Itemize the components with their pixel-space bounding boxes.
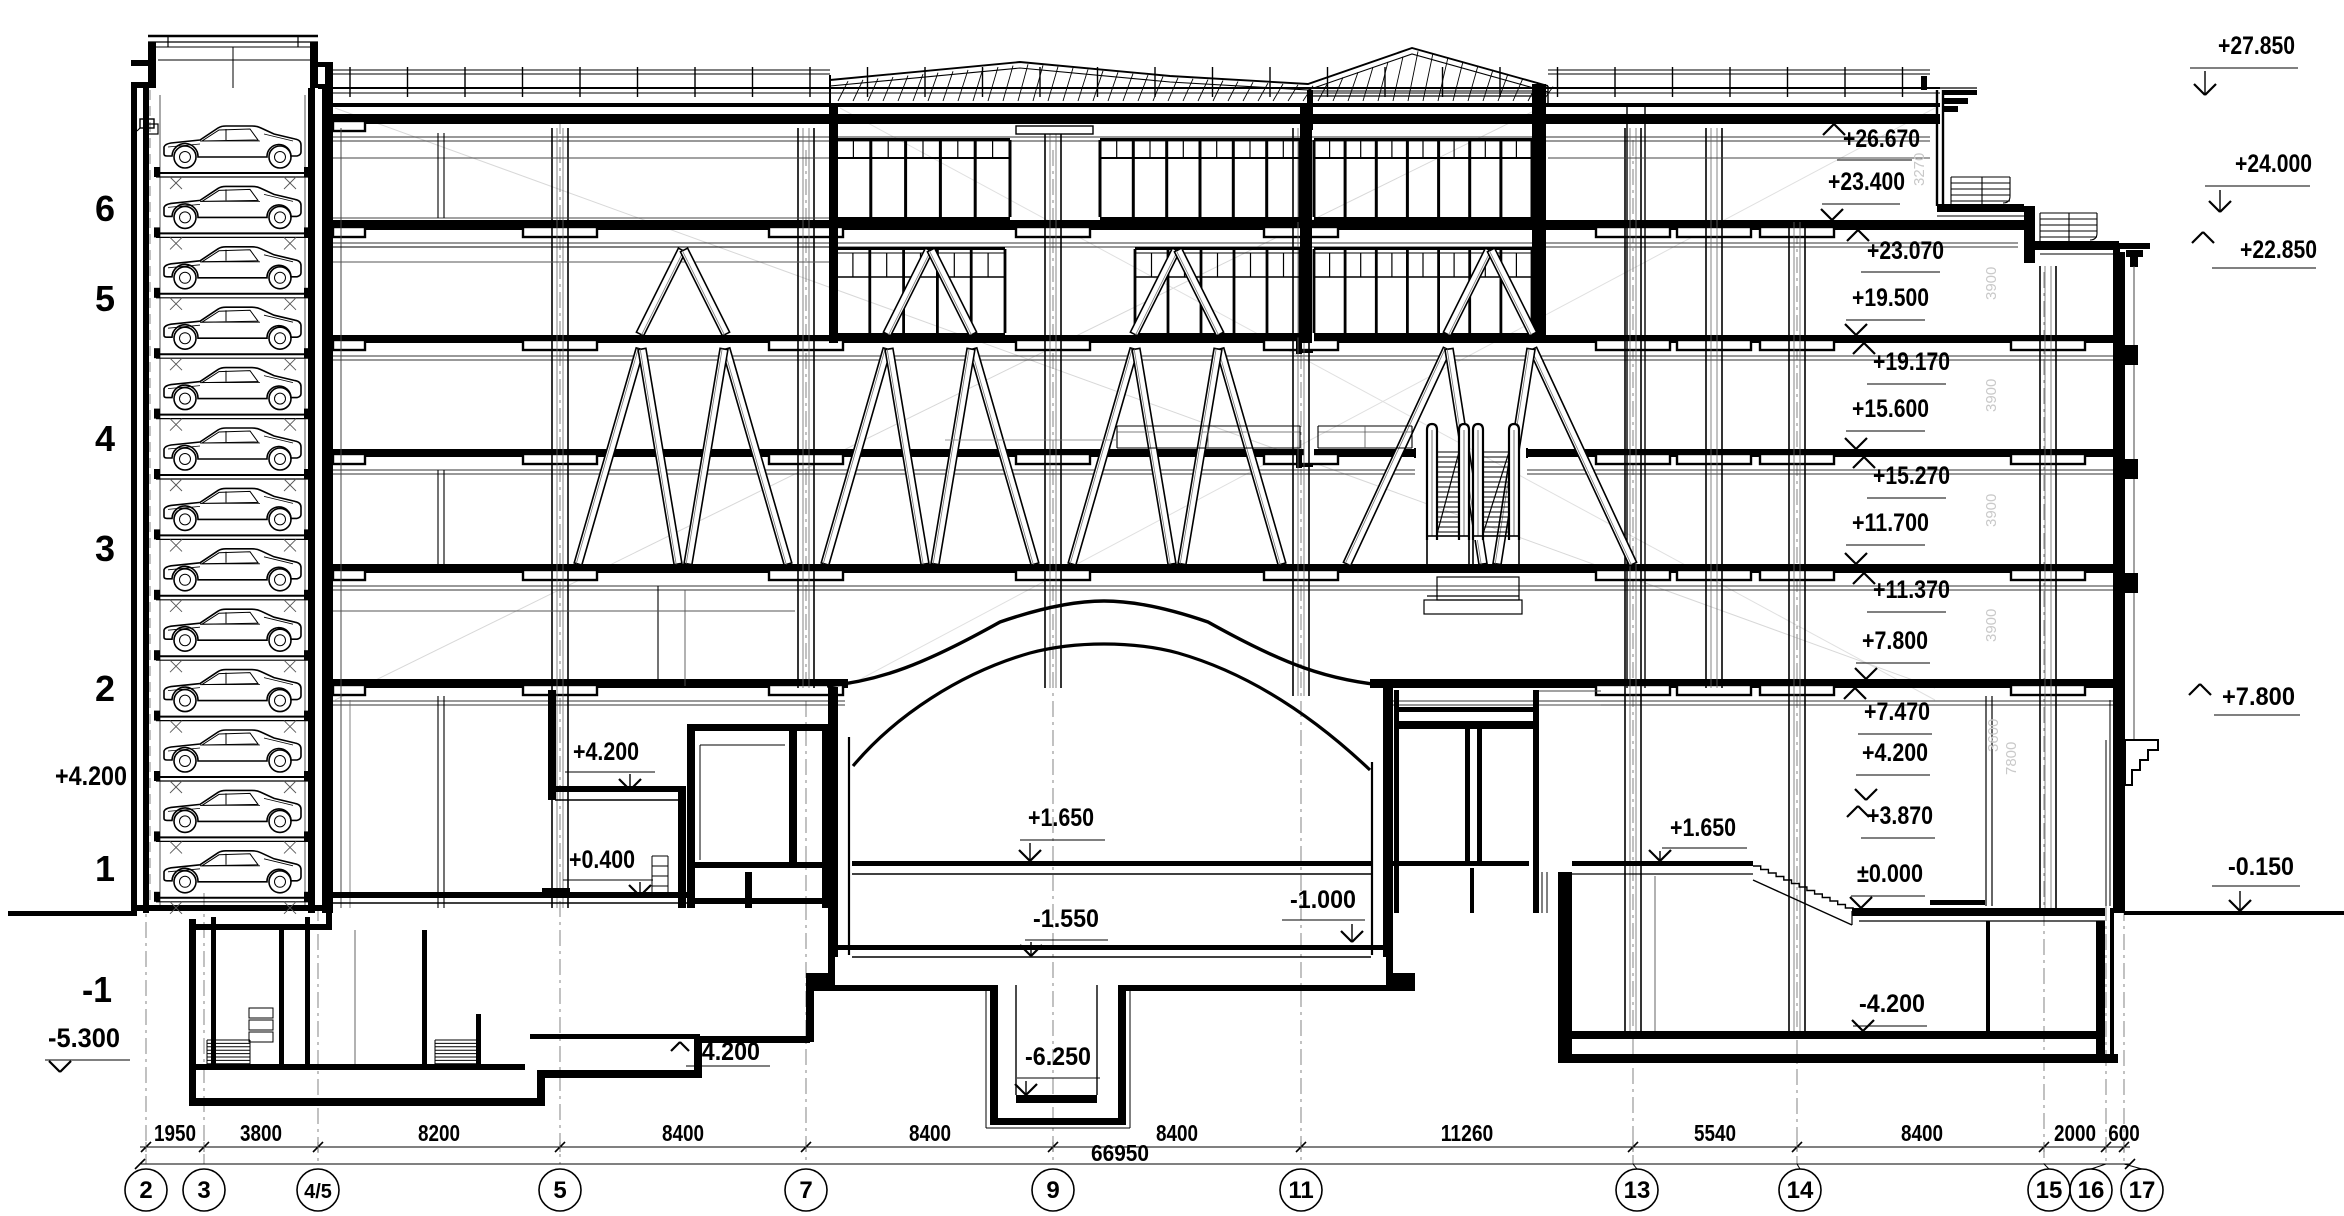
- svg-text:-0.150: -0.150: [2228, 853, 2294, 881]
- svg-text:+7.470: +7.470: [1864, 698, 1930, 726]
- svg-text:+11.370: +11.370: [1873, 576, 1950, 604]
- svg-text:+3.870: +3.870: [1867, 802, 1933, 830]
- svg-text:+26.670: +26.670: [1843, 125, 1920, 153]
- svg-text:5: 5: [553, 1177, 566, 1204]
- svg-text:11260: 11260: [1441, 1120, 1494, 1146]
- svg-text:14: 14: [1787, 1177, 1814, 1204]
- svg-text:16: 16: [2078, 1177, 2105, 1204]
- svg-text:8400: 8400: [909, 1120, 951, 1146]
- svg-text:3: 3: [95, 528, 115, 569]
- svg-text:7800: 7800: [2003, 742, 2020, 775]
- svg-text:+7.800: +7.800: [1862, 627, 1928, 655]
- svg-text:-4.200: -4.200: [694, 1038, 760, 1066]
- svg-text:+23.400: +23.400: [1828, 168, 1905, 196]
- svg-text:+19.500: +19.500: [1852, 284, 1929, 312]
- svg-text:+4.200: +4.200: [1862, 739, 1928, 767]
- svg-text:+22.850: +22.850: [2240, 236, 2317, 264]
- svg-text:4/5: 4/5: [304, 1181, 332, 1203]
- svg-text:-1.000: -1.000: [1290, 886, 1356, 914]
- svg-text:+15.600: +15.600: [1852, 395, 1929, 423]
- svg-text:+24.000: +24.000: [2235, 150, 2312, 178]
- svg-text:+15.270: +15.270: [1873, 462, 1950, 490]
- svg-text:3270: 3270: [1911, 153, 1928, 186]
- svg-text:7: 7: [799, 1177, 812, 1204]
- svg-text:-6.250: -6.250: [1025, 1043, 1091, 1071]
- svg-text:3900: 3900: [1983, 267, 2000, 300]
- svg-text:66950: 66950: [1091, 1140, 1149, 1166]
- svg-text:3600: 3600: [1985, 719, 2002, 752]
- svg-text:+1.650: +1.650: [1670, 814, 1736, 842]
- svg-text:1950: 1950: [154, 1120, 196, 1146]
- svg-text:+0.400: +0.400: [569, 846, 635, 874]
- svg-text:11: 11: [1288, 1177, 1313, 1204]
- svg-text:3900: 3900: [1983, 609, 2000, 642]
- svg-text:+1.650: +1.650: [1028, 804, 1094, 832]
- svg-text:-1: -1: [82, 969, 112, 1010]
- svg-text:4: 4: [95, 418, 115, 459]
- svg-text:8400: 8400: [1156, 1120, 1198, 1146]
- svg-text:-4.200: -4.200: [1859, 990, 1925, 1018]
- svg-text:5540: 5540: [1694, 1120, 1736, 1146]
- svg-text:8400: 8400: [1901, 1120, 1943, 1146]
- svg-text:3900: 3900: [1983, 379, 2000, 412]
- svg-text:8200: 8200: [418, 1120, 460, 1146]
- svg-text:+23.070: +23.070: [1867, 237, 1944, 265]
- svg-text:5: 5: [95, 278, 115, 319]
- svg-text:-5.300: -5.300: [48, 1023, 120, 1053]
- svg-text:+11.700: +11.700: [1852, 509, 1929, 537]
- svg-text:±0.000: ±0.000: [1857, 860, 1923, 888]
- svg-text:2: 2: [95, 668, 115, 709]
- svg-text:+27.850: +27.850: [2218, 32, 2295, 60]
- svg-text:+4.200: +4.200: [55, 761, 127, 791]
- svg-text:+19.170: +19.170: [1873, 348, 1950, 376]
- svg-text:6: 6: [95, 188, 115, 229]
- svg-text:9: 9: [1046, 1177, 1059, 1204]
- svg-text:13: 13: [1624, 1177, 1651, 1204]
- svg-text:2000: 2000: [2054, 1120, 2096, 1146]
- svg-text:3: 3: [197, 1177, 210, 1204]
- svg-text:15: 15: [2036, 1177, 2063, 1204]
- svg-text:1: 1: [95, 848, 115, 889]
- svg-text:8400: 8400: [662, 1120, 704, 1146]
- svg-text:600: 600: [2108, 1120, 2140, 1146]
- svg-text:17: 17: [2129, 1177, 2156, 1204]
- svg-text:3900: 3900: [1983, 494, 2000, 527]
- svg-text:+7.800: +7.800: [2222, 683, 2295, 711]
- svg-text:+4.200: +4.200: [573, 738, 639, 766]
- svg-text:2: 2: [139, 1177, 152, 1204]
- svg-text:3800: 3800: [240, 1120, 282, 1146]
- svg-text:-1.550: -1.550: [1033, 905, 1099, 933]
